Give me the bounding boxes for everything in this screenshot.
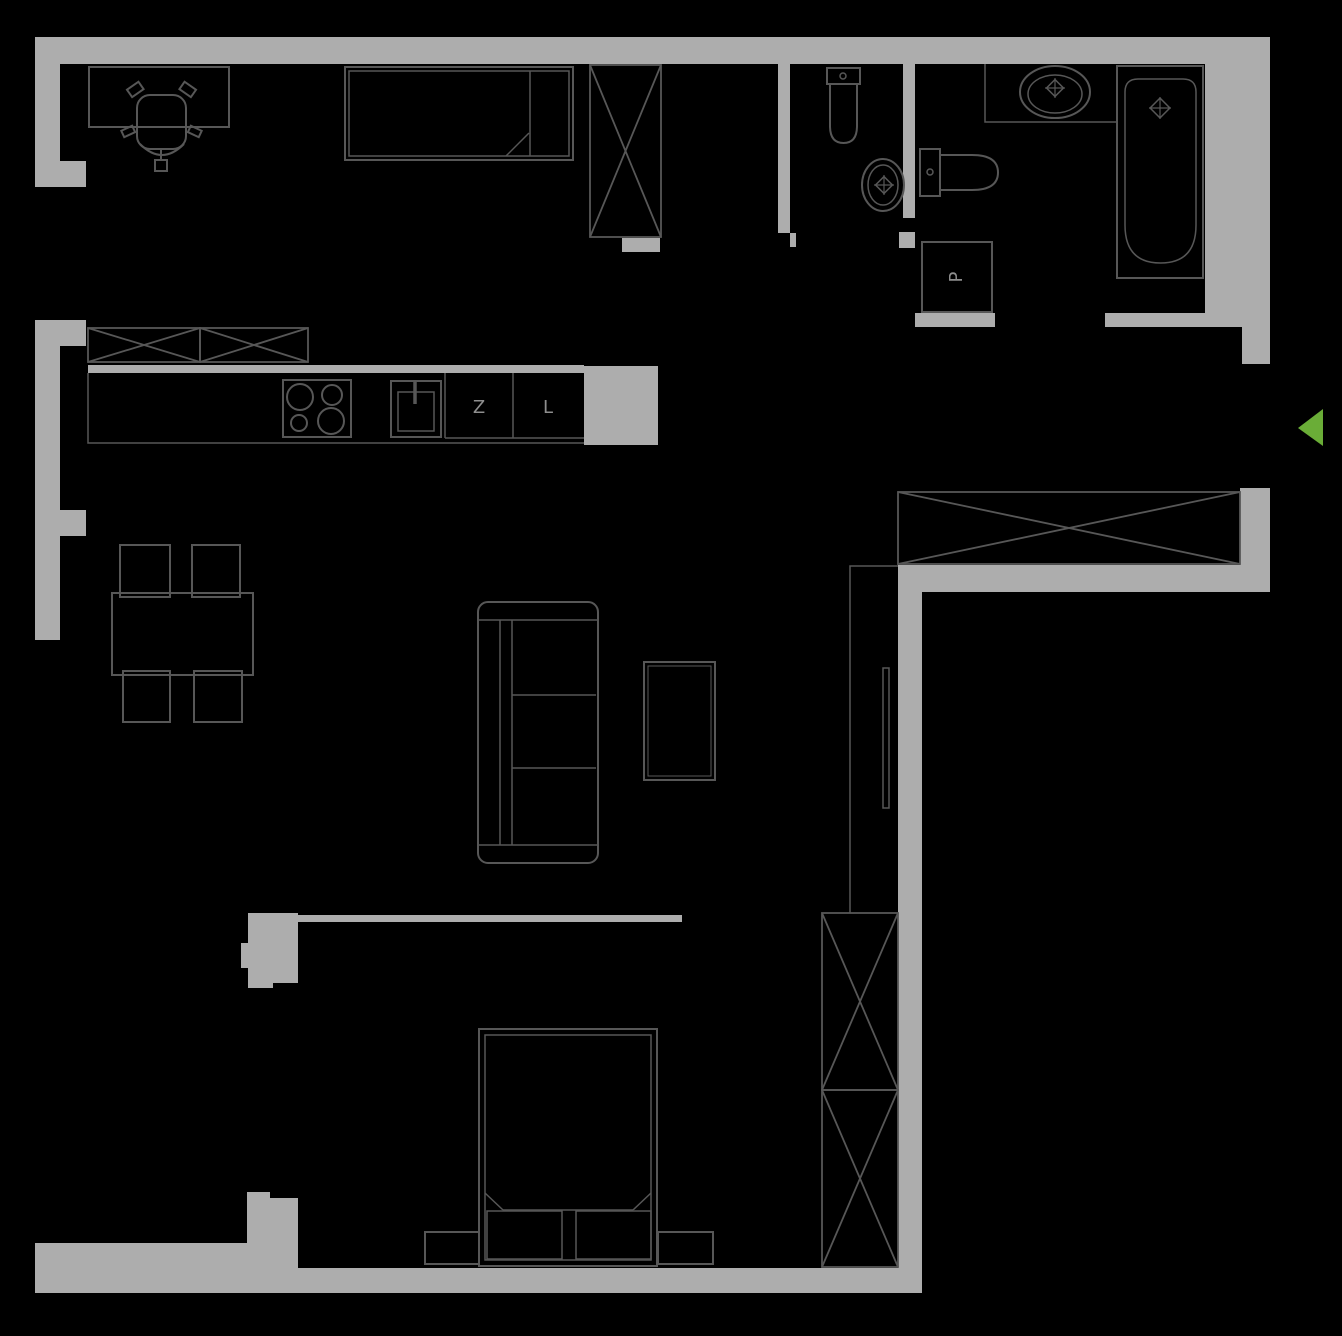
wall-wc-bathroom <box>903 64 915 218</box>
wall-right-bathroom <box>1205 64 1270 327</box>
wall-childroom-wc-jamb <box>790 233 796 247</box>
plan-background <box>0 0 1342 1336</box>
kitchen-dishwasher-label: Z <box>473 397 485 418</box>
wall-left-kitchen-notch-bottom <box>60 510 86 536</box>
wall-left-kitchen <box>35 320 60 640</box>
wall-left-upper-notch <box>60 161 86 187</box>
wall-bottom-right <box>298 1268 922 1293</box>
wall-right-above-entrance <box>1242 327 1270 364</box>
kitchen-fridge-label: L <box>543 397 553 418</box>
wall-bathroom-bottom <box>1105 313 1205 327</box>
wall-bedroom-top <box>298 915 682 922</box>
wall-childroom-wc <box>778 64 790 233</box>
wall-bedroom-left-foot <box>248 967 273 988</box>
wall-kitchen-top <box>88 365 584 373</box>
wall-right-below-entrance <box>1240 488 1270 565</box>
wall-bottom-pillar-b <box>270 1198 298 1293</box>
wall-kitchen-block <box>584 366 658 445</box>
wall-top <box>35 37 1270 64</box>
wall-corridor-bedroom <box>898 565 922 1293</box>
wall-wc-jamb <box>899 232 915 248</box>
wall-bottom-left <box>35 1243 247 1293</box>
wall-hallway-bottom <box>898 565 1270 592</box>
washing-machine-label: P <box>946 271 967 282</box>
wall-left-upper <box>35 37 60 187</box>
wall-bottom-pillar-a <box>247 1192 270 1293</box>
floor-plan: ZLP <box>0 0 1342 1336</box>
wall-bedroom-left-tab <box>241 943 248 968</box>
wall-left-kitchen-notch-top <box>60 320 86 346</box>
wall-childroom-door-stub <box>622 238 660 252</box>
floor-plan-svg: ZLP <box>0 0 1342 1336</box>
wall-below-laundry <box>915 313 995 327</box>
